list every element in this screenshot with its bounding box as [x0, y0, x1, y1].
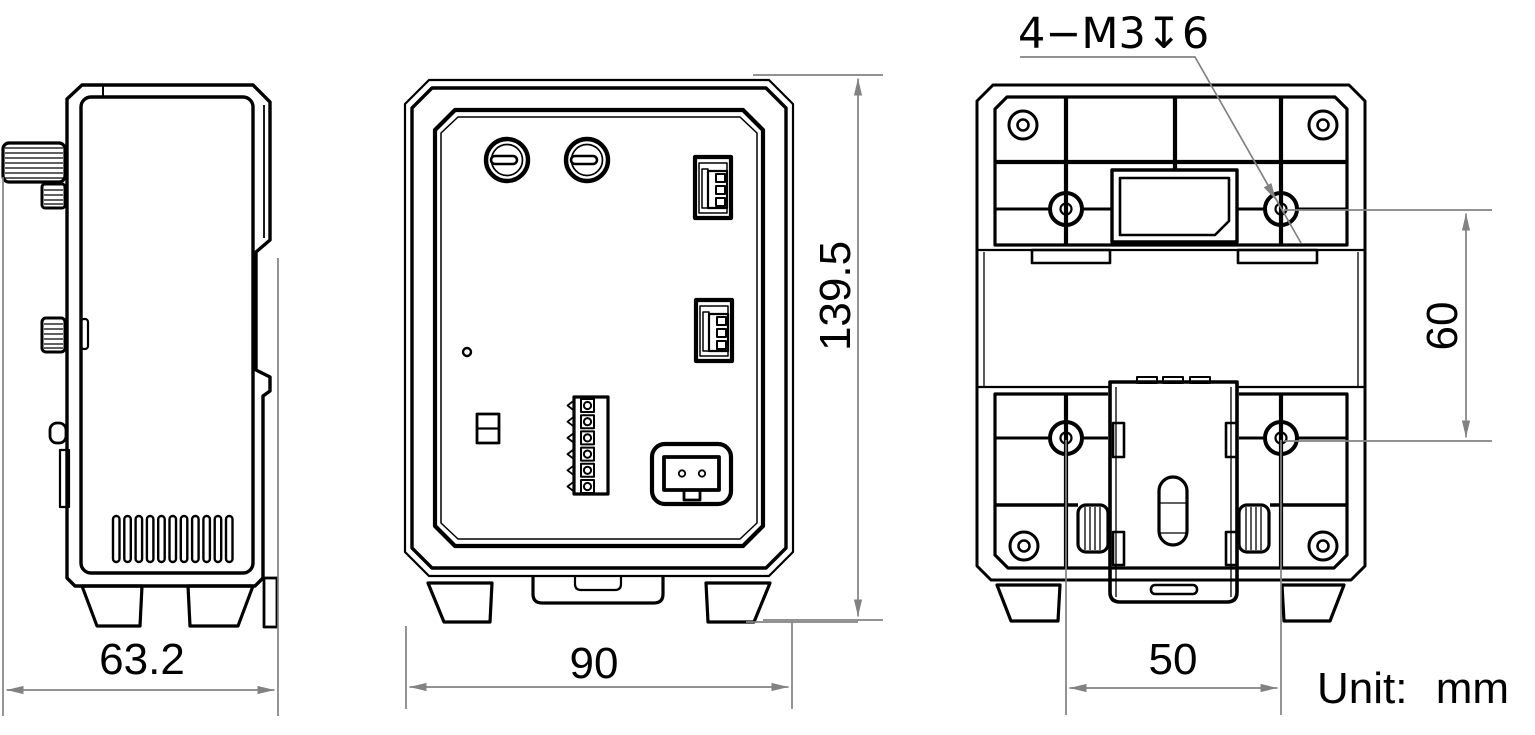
label-recess: [1112, 170, 1237, 242]
dimension-drawing-page: 63.2 90 139.5 4−M3↧6 60: [0, 0, 1535, 735]
side-foot-right: [188, 586, 253, 626]
dim-side-width-label: 63.2: [99, 635, 185, 684]
side-outer-outline: [67, 85, 270, 586]
dip-switch: [477, 414, 499, 443]
side-view: [3, 85, 277, 627]
side-knob-top: [3, 143, 65, 208]
potentiometer-2: [566, 139, 608, 181]
clip-center-slot: [1159, 477, 1187, 545]
dim-front-width: 90: [406, 622, 792, 709]
side-vent-slots: [113, 516, 233, 562]
knurl-hatch-collar: [44, 190, 63, 204]
thread-callout-label: 4−M3↧6: [1018, 9, 1209, 59]
side-foot-left: [82, 586, 142, 626]
led-hole: [463, 348, 471, 356]
connector-1: [695, 157, 731, 218]
dim-hole-horizontal-spacing: 50: [1066, 440, 1281, 715]
clip-bottom-slot: [1151, 585, 1197, 594]
clip-spring-left: [1078, 505, 1108, 552]
side-cover-outline: [81, 97, 253, 573]
unit-label: Unit: mm: [1317, 664, 1509, 713]
unit-value: mm: [1436, 664, 1509, 713]
knurl-hatch: [5, 148, 63, 178]
front-center-tab-slot: [575, 577, 621, 590]
unit-prefix: Unit:: [1317, 664, 1407, 713]
back-lower-block: [995, 394, 1347, 568]
side-knob-middle: [42, 318, 65, 352]
dim-side-width: 63.2: [3, 177, 278, 716]
back-lower-ribs: [995, 394, 1347, 568]
back-foot-left: [997, 585, 1060, 621]
side-edge-bump: [81, 319, 88, 349]
back-foot-right: [1282, 585, 1344, 621]
side-rail-hook: [264, 578, 277, 627]
power-connector: [652, 444, 731, 504]
screw-hole-bottom-right: [1309, 532, 1337, 560]
potentiometer-1: [486, 139, 528, 181]
dim-hole-horizontal-label: 50: [1149, 635, 1198, 684]
dim-overall-height: 139.5: [746, 75, 883, 622]
front-foot-left: [428, 583, 492, 622]
dim-overall-height-label: 139.5: [811, 241, 860, 351]
front-foot-right: [706, 583, 770, 622]
back-tab-right: [1238, 250, 1317, 263]
terminal-block: [568, 397, 609, 494]
back-tab-left: [1032, 250, 1110, 263]
front-view: [405, 80, 793, 622]
screw-hole-top-left: [1009, 111, 1037, 139]
screw-hole-top-right: [1309, 111, 1337, 139]
screw-hole-bottom-left: [1010, 532, 1038, 560]
back-view: [977, 85, 1365, 621]
connector-2: [696, 300, 732, 361]
dimension-drawing: 63.2 90 139.5 4−M3↧6 60: [0, 0, 1535, 735]
side-stub: [50, 423, 66, 443]
dim-hole-vertical-label: 60: [1418, 302, 1467, 351]
knurl-hatch-mid: [44, 324, 63, 348]
clip-spring-right: [1239, 505, 1269, 552]
dim-front-width-label: 90: [570, 639, 619, 688]
front-outer-outline: [405, 80, 793, 576]
